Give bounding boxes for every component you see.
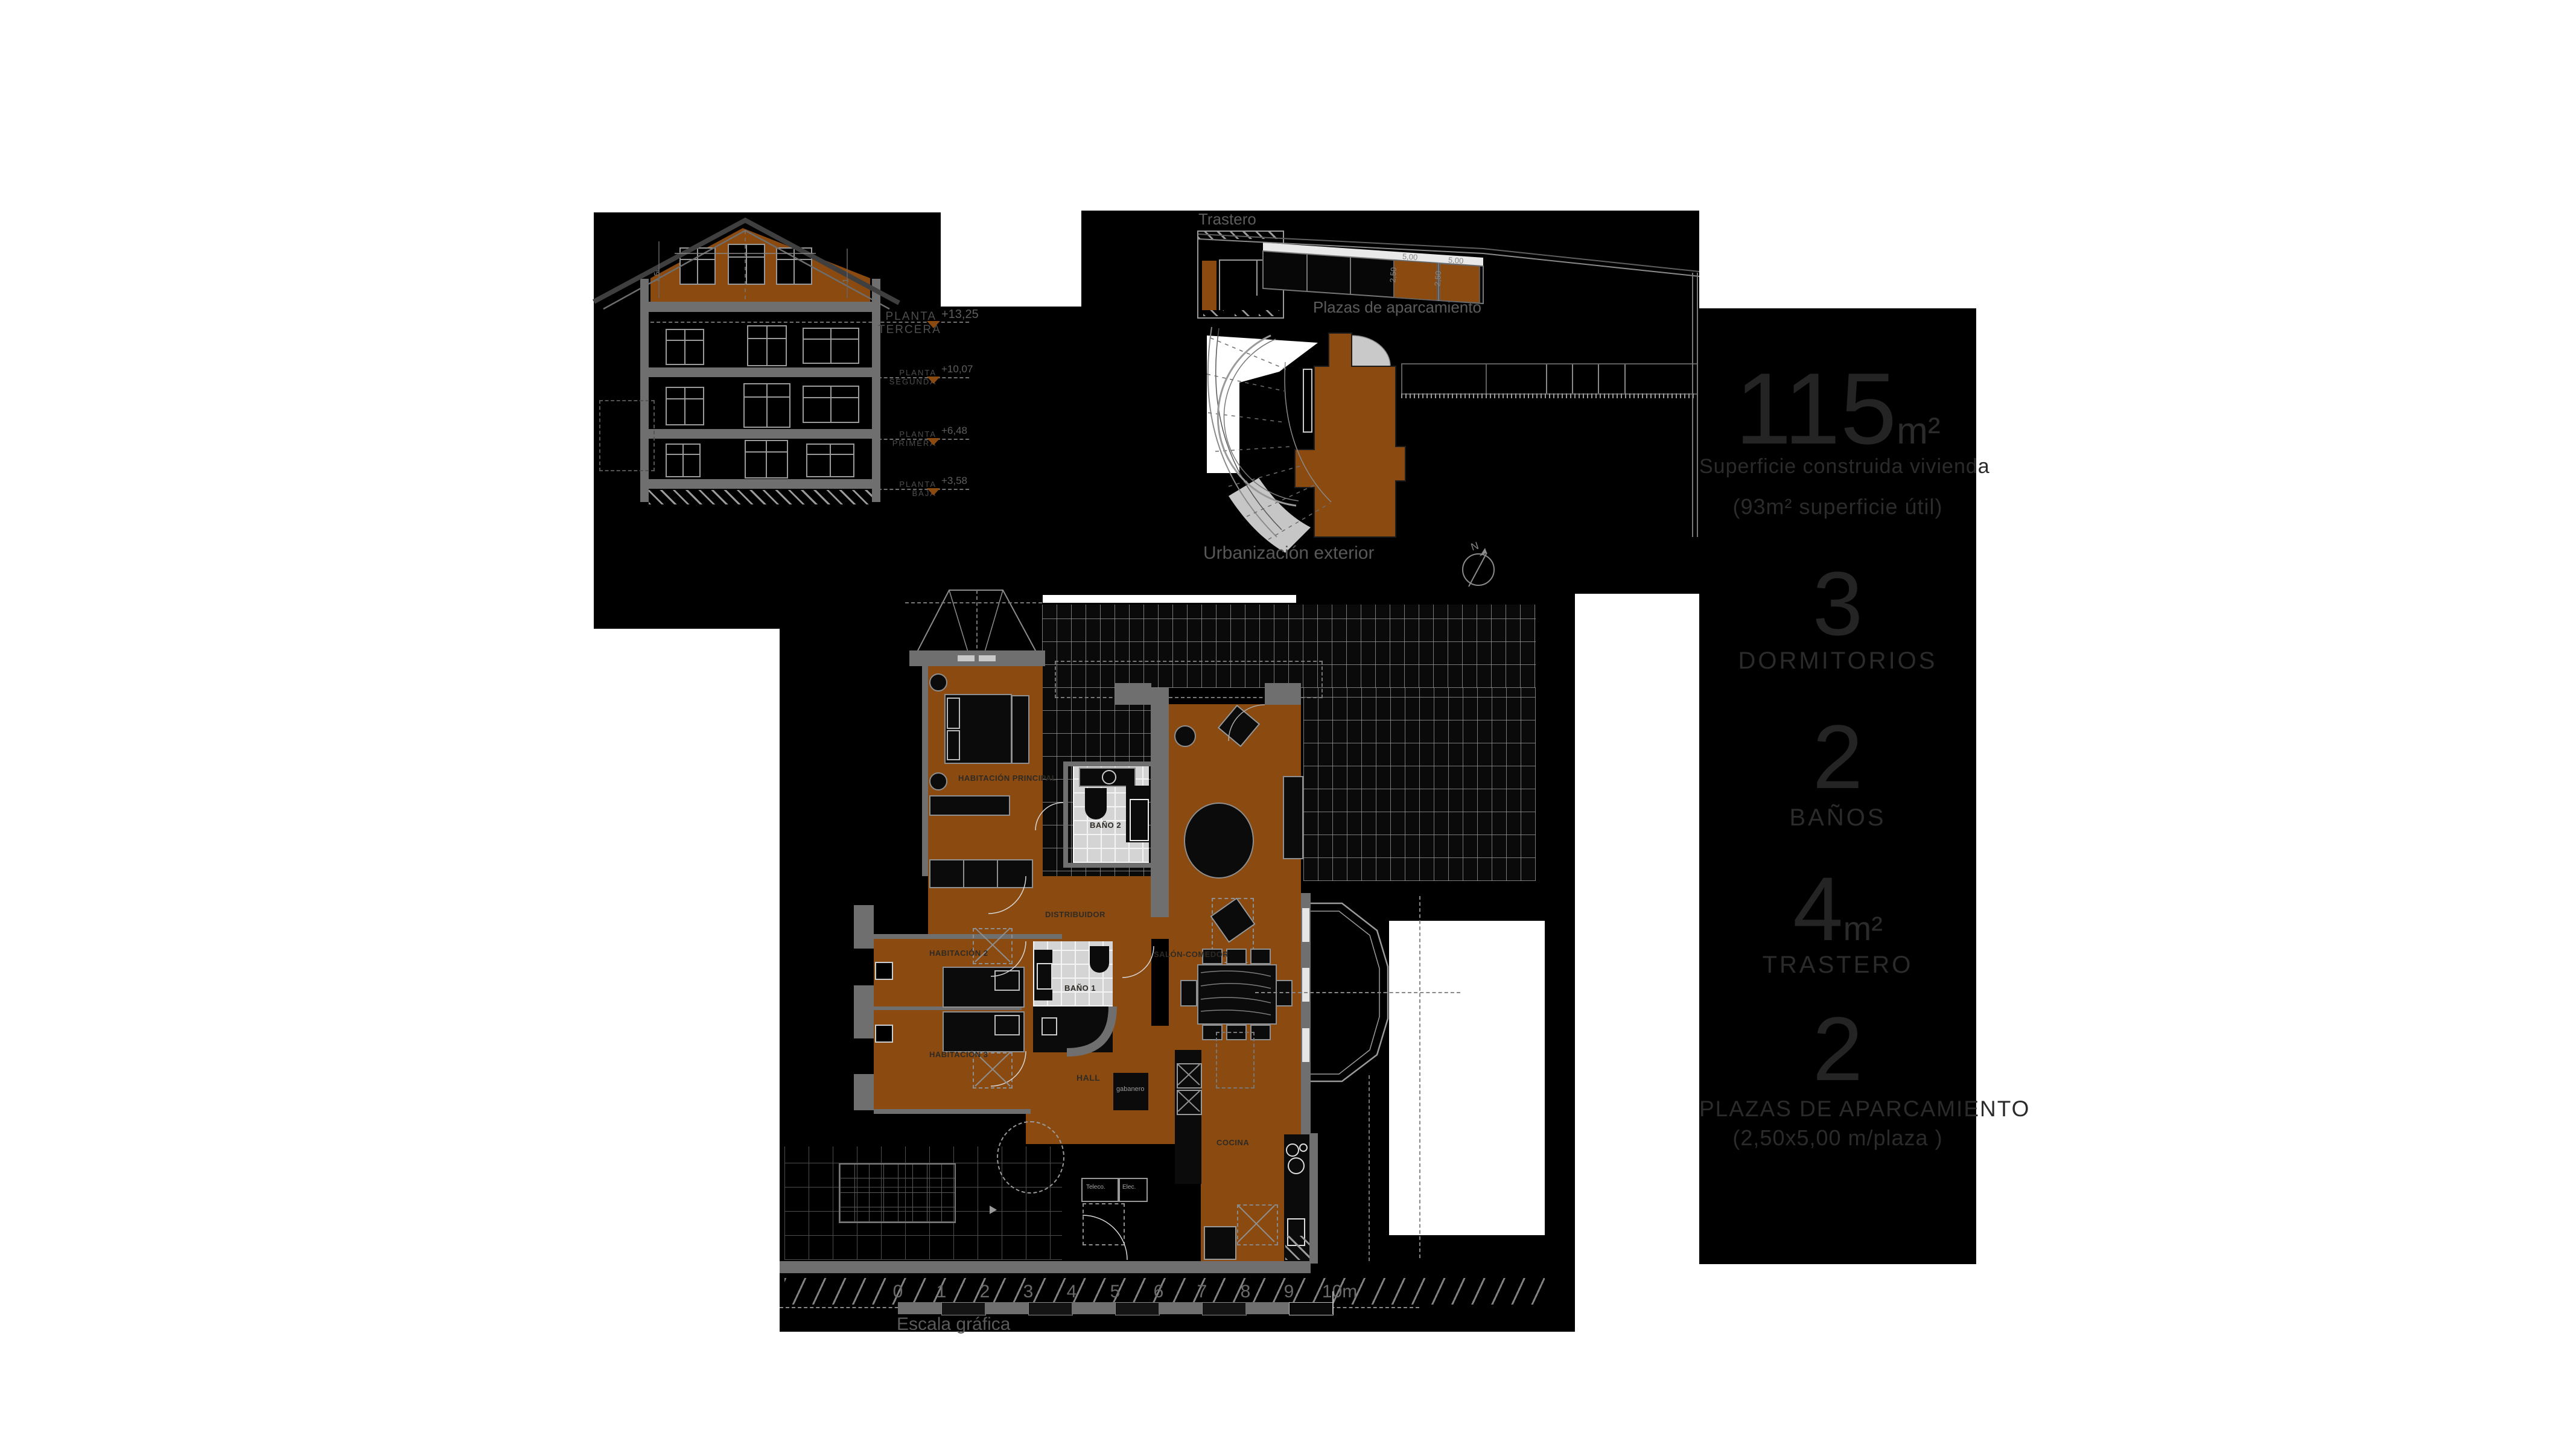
parking-dim-width-1: 2,50 [1388,267,1398,282]
kitchen-appliance [1204,1226,1236,1260]
corner-hatch [1285,1236,1309,1260]
window [747,325,787,366]
nightstand [929,772,947,790]
utility-box-teleco-label: Teleco. [1086,1184,1105,1191]
master-wardrobe [1011,695,1029,764]
trastero-label: Trastero [1198,210,1256,229]
utility-xbox [1177,1090,1202,1115]
room-label-hab2: HABITACIÓN 2 [929,949,988,958]
utility-box-elec-label: Elec. [1122,1184,1136,1191]
bed-pillow [947,698,960,729]
roof-axis-dash [905,602,1042,603]
scale-tick: 4 [1067,1282,1077,1302]
garden-structure [1401,363,1698,395]
axis-dash-v2 [1369,1075,1370,1261]
master-closet [929,859,1033,888]
scale-segment [941,1302,986,1315]
storage-label: TRASTERO [1699,952,1976,979]
parking-dim-length-2: 5,00 [1448,255,1464,265]
stairs-arrow [990,1206,997,1214]
window [666,387,704,425]
scale-tick: 7 [1197,1282,1207,1302]
storage-unit: m² [1843,909,1883,947]
chair [1226,949,1247,964]
kitchen-dashed [1237,1204,1278,1245]
terrace-inner-grid [839,1163,956,1223]
attic-dim-right: 1,9 [841,272,850,282]
salon-window [1302,968,1309,1002]
roof-ridge-strip [1043,595,1296,603]
parking-stat-label: PLAZAS DE APARCAMIENTO [1699,1096,1976,1122]
gravel-band [1401,393,1697,398]
window [803,386,859,423]
wall [1068,761,1153,766]
wall-west-pier [854,985,874,1038]
bottom-slab [780,1261,1311,1273]
master-dresser [929,795,1010,816]
nightstand [929,673,947,692]
dining-table [1197,964,1277,1025]
scale-segment [1115,1302,1160,1315]
tree-oval [997,1121,1064,1194]
level-marker [927,438,940,445]
bath1-sink [1037,963,1052,990]
storage-number: 4m² [1699,863,1976,954]
bed-pillow [994,970,1020,991]
foundation-hatch [649,490,872,504]
scale-segment [1028,1302,1073,1315]
wall [922,666,928,876]
bath1-toilet [1090,946,1109,973]
storage-value: 4 [1793,858,1843,959]
window [803,328,859,364]
window [666,329,704,365]
scale-tick: 3 [1023,1282,1034,1302]
bath2-tub [1130,799,1149,841]
area-unit: m² [1897,410,1940,452]
baths-value: 2 [1699,711,1976,802]
window [666,444,701,477]
area-line1: Superficie construida vivienda [1699,455,1976,479]
room-label-bath1: BAÑO 1 [1064,984,1096,993]
attic-dim-left: 1,50 [652,267,661,282]
scale-label: Escala gráfica [897,1314,1010,1335]
attic-window [679,247,716,285]
wall-kitchen-east [1309,1133,1318,1264]
sofa [1283,776,1303,859]
west-window-glyph [875,962,893,980]
wall-window-gap [979,655,996,661]
scale-segment [1072,1302,1115,1314]
parking-value: 2 [1699,1003,1976,1094]
salon-window [1302,908,1309,942]
scale-tick: 8 [1241,1282,1251,1302]
bedrooms-value: 3 [1699,558,1976,649]
scale-tick: 1 [937,1282,947,1302]
skylight-box [973,928,1013,964]
wall-west-pier [854,905,874,949]
chair [1250,949,1271,964]
panel-gap-fill [941,307,1081,629]
rug-oval [1184,803,1254,879]
section-dashed-outline [599,400,655,471]
floor-slab [647,479,873,489]
baths-label: BAÑOS [1699,804,1976,831]
salon-window [1302,1028,1309,1062]
scale-tick: 2 [980,1282,990,1302]
scale-segment [898,1302,941,1314]
west-window-glyph [875,1025,893,1043]
room-label-salon: SALÓN-COMEDOR [1154,950,1229,959]
scale-segment [1289,1302,1334,1315]
level-value: +6,48 [941,425,967,437]
trastero-room-highlight [1202,261,1216,310]
area-value: 115 [1735,352,1897,465]
room-label-distribuidor: DISTRIBUIDOR [1045,910,1105,919]
attic-window [776,247,812,285]
room-label-cocina: COCINA [1216,1138,1249,1147]
scale-tick: 6 [1154,1282,1164,1302]
level-marker [927,321,940,328]
trastero-building [1197,231,1284,319]
floor-slab [647,302,873,312]
bath2-toilet [1085,788,1107,819]
scale-segment [985,1302,1028,1314]
window [743,383,790,428]
scale-tick: 0 [893,1282,903,1302]
wall [874,1109,1031,1114]
parking-label: Plazas de aparcamiento [1313,298,1481,317]
scale-end-tick [1332,1291,1334,1314]
scale-segment [1202,1302,1247,1315]
urbanizacion-label: Urbanización exterior [1203,543,1374,564]
level-value: +10,07 [941,363,973,375]
window [745,440,788,479]
room-label-hall: HALL [1077,1073,1100,1083]
bath2-sink [1102,770,1116,784]
wall [1063,761,1068,868]
scale-tick: 10m [1322,1282,1357,1302]
bath1-fixture [1042,1017,1057,1035]
level-value: +13,25 [941,308,979,322]
level-marker [927,488,940,495]
axis-dash-v [1419,896,1420,1258]
entry-dashed [1083,1203,1125,1245]
area-line2: (93m² superficie útil) [1699,494,1976,520]
roof-tiles [1303,688,1536,881]
wall [1068,863,1153,868]
bedrooms-label: DORMITORIOS [1699,647,1976,675]
wall-west-pier [854,1074,874,1110]
level-value: +3,58 [941,475,967,487]
bed-pillow [994,1015,1020,1035]
balcony-pier [1115,683,1151,705]
side-table [1174,725,1196,747]
floor-slab [647,429,873,439]
attic-window [728,244,765,285]
floor-slab [647,367,873,377]
scale-tick: 9 [1284,1282,1294,1302]
level-marker [927,377,940,384]
axis-dash-h [1255,992,1460,993]
parking-sub: (2,50x5,00 m/plaza ) [1699,1125,1976,1151]
utility-xbox [1177,1063,1202,1089]
wall-window-gap [958,655,975,661]
boundary-wall-east [1692,273,1698,537]
parking-dim-length-1: 5,00 [1402,252,1418,262]
scale-tick: 5 [1110,1282,1121,1302]
wall [909,650,1045,666]
room-label-master: HABITACIÓN PRINCIPAL [958,774,1057,783]
closet-label: gabanero [1116,1086,1145,1093]
wall [874,934,1062,939]
white-notch [1389,921,1545,1235]
window [806,444,854,477]
wall [1151,688,1169,917]
parking-dim-width-2: 2,50 [1433,270,1443,286]
room-label-bath2: BAÑO 2 [1090,821,1121,830]
chair [1276,980,1293,1006]
room-label-hab3: HABITACIÓN 3 [929,1050,988,1059]
presentation-sheet: PLANTA TERCERA +13,25 PLANTA SEGUNDA +10… [0,0,2576,1453]
scale-segment [1245,1302,1289,1314]
area-number: 115m² [1699,358,1976,459]
pantry-dashed [1216,1032,1255,1089]
balcony-pier [1265,683,1301,705]
floor-corridor2 [1043,876,1169,939]
bed-pillow [947,730,960,760]
stats-column: 115m² Superficie construida vivienda (93… [1699,308,1976,1264]
scale-segment [1159,1302,1202,1314]
chair [1180,980,1197,1006]
